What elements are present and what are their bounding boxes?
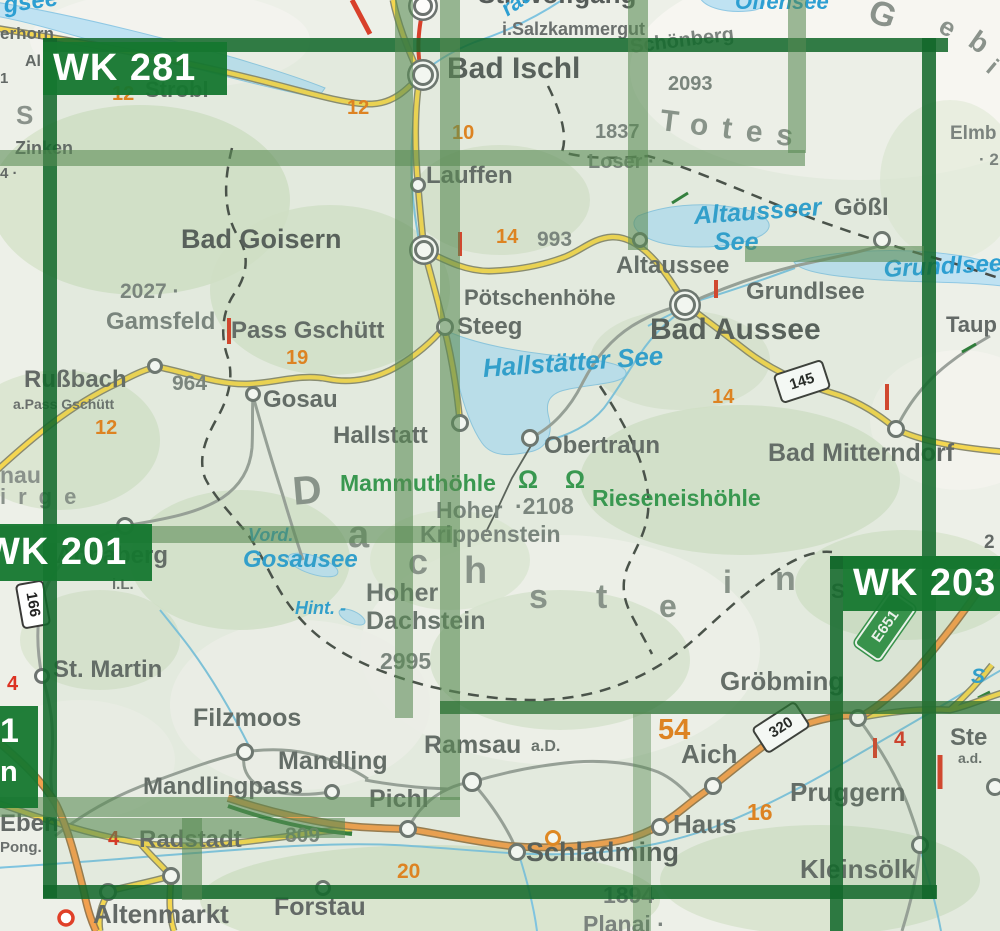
map-label-frag-s: S (16, 102, 33, 128)
sheet-label-partial-line2: n (0, 756, 19, 789)
sheet-boundary (43, 38, 57, 898)
sheet-label-wk201: WK 201 (0, 524, 152, 581)
map-label-planai: Planai · (583, 913, 665, 931)
sheet-boundary (43, 885, 937, 899)
map-label-tauplitz-frag: Taup (946, 314, 997, 336)
map-label-frag-al: Al (25, 54, 41, 70)
map-label-red-4-a: 4 (7, 674, 18, 694)
sheet-203-area (830, 556, 1000, 931)
map-label-frag-2: 2 (984, 533, 995, 552)
sheet-label-wk203: WK 203 (843, 556, 1000, 611)
motorway-junction-icon (59, 911, 73, 925)
map-label-eben-pongau: Pong. (0, 840, 42, 855)
map-label-elmberg-frag: Elmb (950, 124, 996, 143)
sheet-boundary (922, 38, 936, 899)
sheet-boundary (182, 818, 202, 900)
map-label-elm-elev-frag: · 2 (979, 151, 999, 168)
sheet-boundary (633, 712, 651, 931)
sheet-boundary (788, 0, 806, 153)
map-label-frag-1: 1 (0, 71, 8, 86)
map-label-altenmarkt: Altenmarkt (93, 901, 229, 927)
sheet-boundary (745, 246, 924, 262)
map-label-frag-4: 4 · (0, 166, 18, 181)
map-label-salzkammergut: i.Salzkammergut (502, 20, 645, 38)
sheet-label-wk281: WK 281 (43, 42, 227, 95)
sheet-boundary (440, 701, 1000, 714)
sheet-boundary (628, 0, 648, 250)
sheet-boundary (395, 0, 413, 718)
sheet-label-partial-line1: 1 (0, 712, 20, 751)
sheet-label-partial: 1 n (0, 706, 38, 808)
sheet-281-area (43, 40, 936, 898)
sheet-boundary (440, 0, 460, 800)
map-label-offensee: Offensee (735, 0, 829, 13)
map-screenshot: gseeSt. Wolfgangi.SalzkammerguterhornAl1… (0, 0, 1000, 931)
sheet-boundary (0, 797, 460, 817)
sheet-boundary (830, 556, 843, 931)
